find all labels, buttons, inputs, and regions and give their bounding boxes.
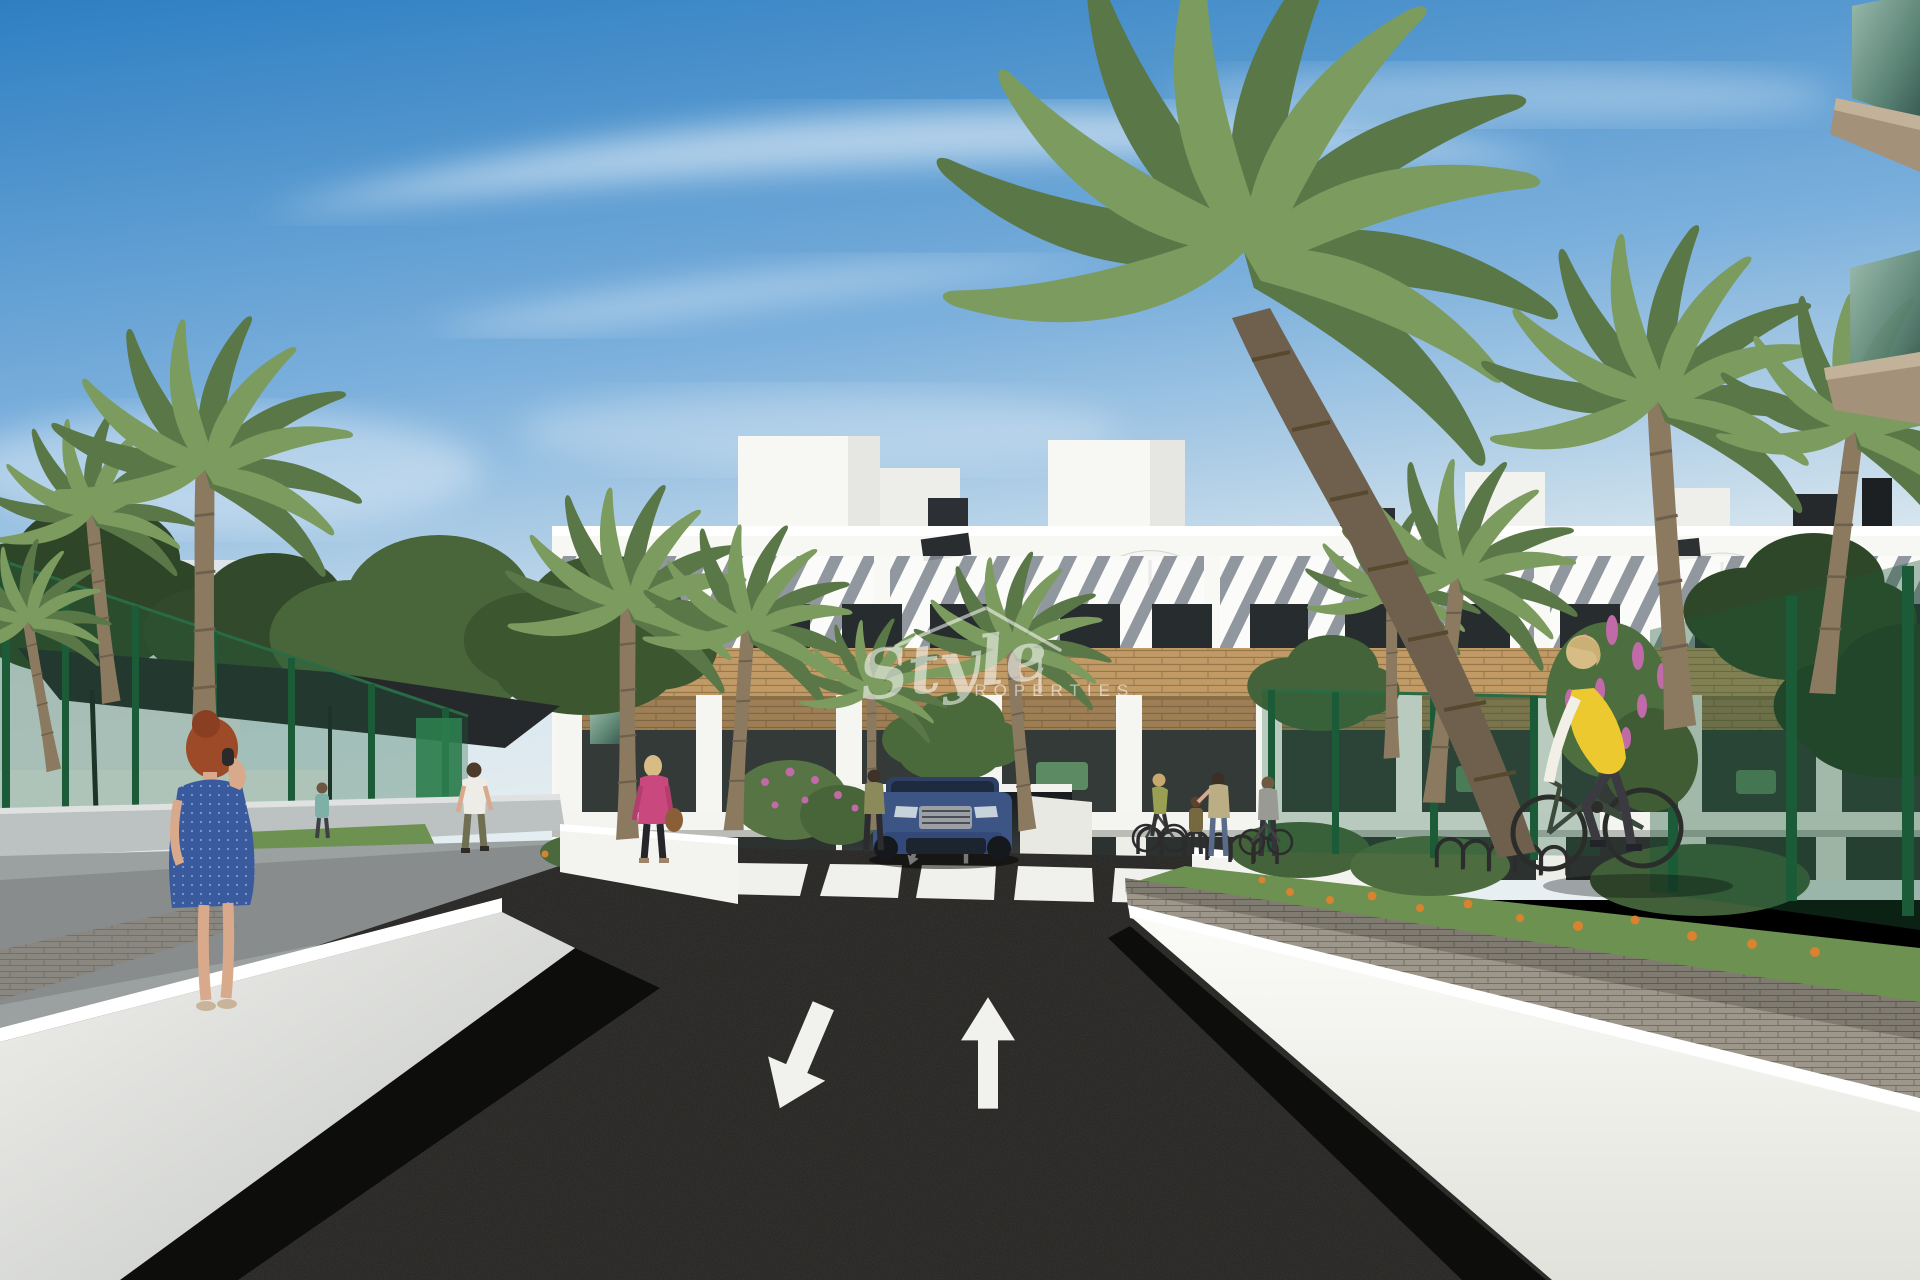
watermark-caps-text: PROPERTIES xyxy=(956,681,1135,700)
roof-chimney xyxy=(1862,478,1892,530)
architectural-render: Style PROPERTIES xyxy=(0,0,1920,1280)
pedestrians-right xyxy=(1133,773,1292,857)
headlight xyxy=(894,806,918,818)
phone xyxy=(222,748,234,766)
roof-ac-unit xyxy=(928,498,968,530)
handbag xyxy=(665,808,683,832)
headlight xyxy=(974,806,998,818)
suv-car xyxy=(869,777,1019,869)
